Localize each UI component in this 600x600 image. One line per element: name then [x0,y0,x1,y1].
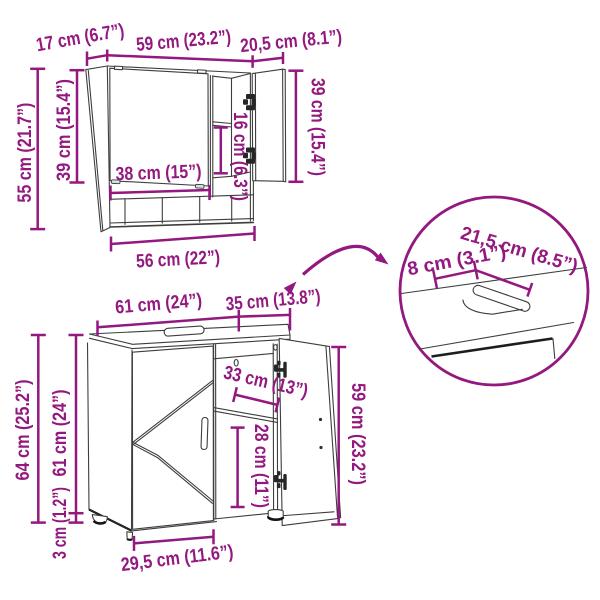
svg-text:56 cm (22”): 56 cm (22”) [136,247,221,272]
svg-text:59 cm (23.2”): 59 cm (23.2”) [347,383,368,485]
svg-text:39 cm (15.4”): 39 cm (15.4”) [307,78,328,176]
svg-text:38 cm (15”): 38 cm (15”) [115,161,202,185]
svg-text:28 cm (11”): 28 cm (11”) [250,424,271,508]
svg-text:61 cm (24”): 61 cm (24”) [50,390,71,477]
svg-text:55 cm (21.7”): 55 cm (21.7”) [15,103,36,203]
svg-text:3 cm (1.2”): 3 cm (1.2”) [50,487,71,559]
svg-text:16 cm (6.3”): 16 cm (6.3”) [229,112,250,201]
svg-text:39 cm (15.4”): 39 cm (15.4”) [54,79,75,181]
svg-text:64 cm (25.2”): 64 cm (25.2”) [13,380,34,481]
